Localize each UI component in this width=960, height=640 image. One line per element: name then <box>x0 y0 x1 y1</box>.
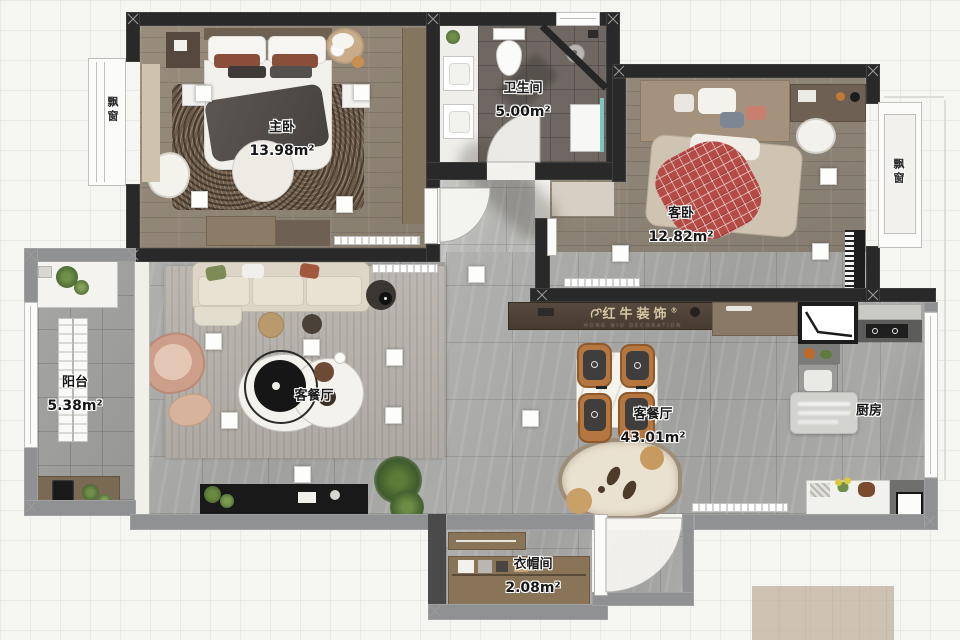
bay-window-left-label: 飘窗 <box>104 96 120 124</box>
vanity-sink-bottom-basin <box>449 111 470 133</box>
spotlight <box>221 412 238 429</box>
living-radiator-north <box>372 264 438 273</box>
cooktop-burner-left <box>872 328 878 334</box>
tray-cup <box>272 382 280 390</box>
spotlight <box>386 349 403 366</box>
spotlight <box>812 243 829 260</box>
entry-rug-print-dot <box>598 486 605 493</box>
room-name: 阳台 <box>47 376 102 391</box>
wall <box>682 514 694 604</box>
master-armchair-throw <box>332 33 354 49</box>
bathroom-cabinet <box>570 104 604 152</box>
room-label-cloakroom: 衣帽间 2.08m² <box>505 558 560 596</box>
balcony-sliding-door <box>134 256 150 516</box>
entry-radiator <box>692 503 788 512</box>
guest-wardrobe-clothes-blue <box>720 112 744 128</box>
coffee-table-dish <box>334 352 346 364</box>
room-name: 主卧 <box>249 121 314 136</box>
exterior-line-right <box>944 100 946 480</box>
guest-desk-item-orange <box>836 92 845 101</box>
dining-chair-2-logo <box>634 362 641 369</box>
room-label-kitchen: 厨房 <box>856 405 882 420</box>
guest-round-chair <box>796 118 836 154</box>
wall <box>130 514 446 530</box>
shower-head-center <box>572 50 577 55</box>
wall <box>426 162 487 180</box>
guest-piano-keys <box>845 230 854 290</box>
master-door-leaf <box>424 188 438 244</box>
room-name: 客餐厅 <box>620 408 685 423</box>
cooktop-burner-right <box>892 328 898 334</box>
master-corner-cabinet-decor <box>174 40 187 51</box>
kitchen-art-panel <box>798 302 858 344</box>
room-area: 5.38m² <box>47 398 102 414</box>
spotlight <box>336 196 353 213</box>
bathroom-door-threshold <box>487 162 535 180</box>
kitchen-island-blur-line-2 <box>798 411 850 415</box>
wall <box>428 604 608 620</box>
spotlight <box>303 339 320 356</box>
room-label-master-bedroom: 主卧 13.98m² <box>249 121 314 159</box>
vanity-sink-top-basin <box>449 63 470 85</box>
sideboard-bowl <box>690 307 700 317</box>
room-label-guest-bedroom: 客卧 12.82m² <box>648 207 713 245</box>
room-name: 卫生间 <box>495 82 550 97</box>
room-label-bathroom: 卫生间 5.00m² <box>495 82 550 120</box>
kitchen-hood <box>858 304 922 320</box>
pouf-dark <box>302 314 322 334</box>
brand-tagline: HONG NIU DECORATION <box>584 323 682 329</box>
bathroom-window-line <box>560 18 596 19</box>
balcony-item-small <box>38 266 52 278</box>
wall <box>446 514 594 530</box>
bathroom-window <box>556 12 600 26</box>
wall <box>24 248 136 262</box>
spotlight <box>353 84 370 101</box>
room-area: 2.08m² <box>505 580 560 596</box>
guest-wardrobe-clothes-salmon <box>746 106 766 120</box>
sofa-chaise <box>194 306 242 326</box>
outside-corridor-deck <box>752 586 894 640</box>
guest-door-leaf <box>547 218 557 256</box>
wall <box>866 64 880 104</box>
pouf-tan <box>258 312 284 338</box>
room-name: 客餐厅 <box>294 390 333 405</box>
master-window-bench <box>142 64 160 182</box>
master-dark-pillow <box>228 66 266 78</box>
sideboard-book <box>538 308 554 316</box>
entry-rug-circle-bottom <box>566 488 592 514</box>
kitchen-island-blur-line-3 <box>798 420 838 424</box>
spotlight <box>612 245 629 262</box>
balcony-shelf-plant <box>82 484 99 501</box>
master-dresser-dark <box>276 220 330 246</box>
wall <box>866 246 880 302</box>
kitchen-window-line <box>930 316 931 474</box>
bay-window-left-line-1 <box>96 62 97 182</box>
master-gold-stool <box>352 56 364 68</box>
wall <box>126 12 620 26</box>
guest-desk-item-black <box>850 92 860 102</box>
wall <box>612 64 880 78</box>
room-name: 客卧 <box>648 207 713 222</box>
sofa-cushion-2 <box>252 276 304 306</box>
spotlight <box>294 466 311 483</box>
room-name: 厨房 <box>856 405 882 420</box>
kitchen-herb-green <box>820 350 832 359</box>
room-area: 12.82m² <box>648 229 713 245</box>
guest-wardrobe-clothes-white <box>698 88 736 114</box>
bathroom-shelf-item <box>588 30 598 38</box>
room-name: 衣帽间 <box>505 558 560 573</box>
registered-mark: ® <box>671 307 678 315</box>
dining-chair-3-logo <box>591 411 598 418</box>
vanity-plant <box>446 30 460 44</box>
spotlight <box>205 333 222 350</box>
sofa-cushion-1 <box>198 276 250 306</box>
guest-radiator <box>564 278 640 287</box>
wall <box>126 248 440 262</box>
bay-window-right-label: 飘窗 <box>890 158 906 186</box>
kitchen-oven-door <box>896 492 923 516</box>
wall <box>24 500 136 516</box>
cloakroom-clothes-gray <box>478 560 492 573</box>
room-area: 5.00m² <box>495 104 550 120</box>
wall <box>924 478 938 530</box>
tv-console-plant-1 <box>204 486 221 503</box>
cloakroom-bench-line <box>456 540 516 542</box>
entry-door-leaf <box>594 514 608 596</box>
master-radiator <box>334 236 420 245</box>
cloakroom-clothes-white <box>458 560 474 573</box>
wall <box>694 514 936 530</box>
spotlight <box>468 266 485 283</box>
kitchen-pot-brown <box>858 482 875 497</box>
kitchen-food-orange <box>804 348 815 359</box>
tv-console-paper <box>298 492 316 503</box>
kitchen-flowers-yellow <box>832 476 854 492</box>
guest-desk-laptop <box>798 90 816 102</box>
master-dresser <box>206 216 276 246</box>
wall <box>612 78 626 182</box>
wall <box>535 162 620 180</box>
spotlight <box>191 191 208 208</box>
kitchen-sink-basin <box>804 370 832 391</box>
wall <box>924 302 938 312</box>
kitchen-faucet <box>726 306 752 311</box>
entry-rug-circle-top <box>640 446 664 470</box>
master-dark-pillow-2 <box>270 66 312 78</box>
room-label-balcony: 阳台 5.38m² <box>47 376 102 414</box>
room-area: 43.01m² <box>620 430 685 446</box>
spotlight <box>385 407 402 424</box>
wall <box>426 244 440 262</box>
coffee-table-bowl-brown <box>314 362 334 382</box>
spotlight <box>195 85 212 102</box>
balcony-window <box>24 302 38 448</box>
shower-glass <box>600 98 604 152</box>
dining-table-utensil-left <box>596 386 607 389</box>
balcony-plant-2 <box>74 280 89 295</box>
tv-console-dish <box>330 490 340 500</box>
dining-chair-logo <box>591 361 598 368</box>
balcony-window-line <box>30 306 31 444</box>
wall <box>126 12 140 62</box>
kitchen-counter-wood <box>712 302 798 336</box>
sofa-cushion-3 <box>306 276 362 306</box>
toilet-tank <box>493 28 525 40</box>
brand-watermark: 红牛装饰® HONG NIU DECORATION <box>584 303 682 329</box>
brand-logo-icon <box>588 307 602 319</box>
exterior-line-top-right <box>884 96 944 98</box>
room-label-living-dining: 客餐厅 43.01m² <box>620 408 685 446</box>
spotlight <box>522 410 539 427</box>
kitchen-window <box>924 312 938 478</box>
spotlight <box>820 168 837 185</box>
dining-table-utensil-right <box>636 386 647 389</box>
room-label-living-secondary: 客餐厅 <box>294 390 333 405</box>
kitchen-island-blur-line-1 <box>798 402 850 406</box>
floor-plan: 红牛装饰® HONG NIU DECORATION <box>0 0 960 640</box>
room-area: 13.98m² <box>249 143 314 159</box>
guest-wardrobe-clothes-small <box>674 94 694 112</box>
guest-bedroom-entry-mat <box>552 182 614 216</box>
kitchen-counter-box <box>810 483 830 497</box>
sofa-pillow-rust <box>299 263 320 280</box>
floor-plan-page: { "plan": { "rooms": [ {"name": "主卧", "a… <box>0 0 960 640</box>
tv-console-plant-2 <box>220 494 234 508</box>
brand-name: 红牛装饰 <box>602 307 670 322</box>
sofa-pillow-white <box>242 264 264 278</box>
floor-lamp-dot <box>384 297 387 300</box>
